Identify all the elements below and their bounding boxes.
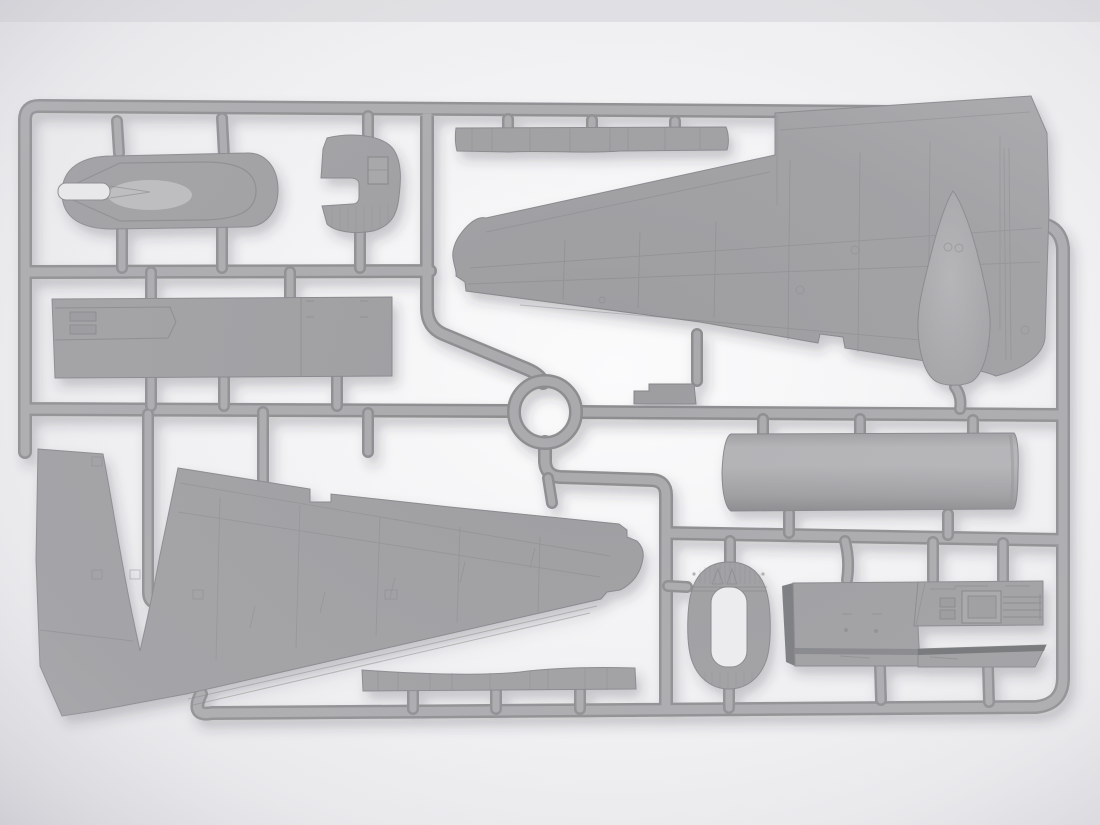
sprue-photo bbox=[0, 0, 1100, 825]
photo-vignette bbox=[0, 0, 1100, 825]
sprue-photo-canvas bbox=[0, 0, 1100, 825]
